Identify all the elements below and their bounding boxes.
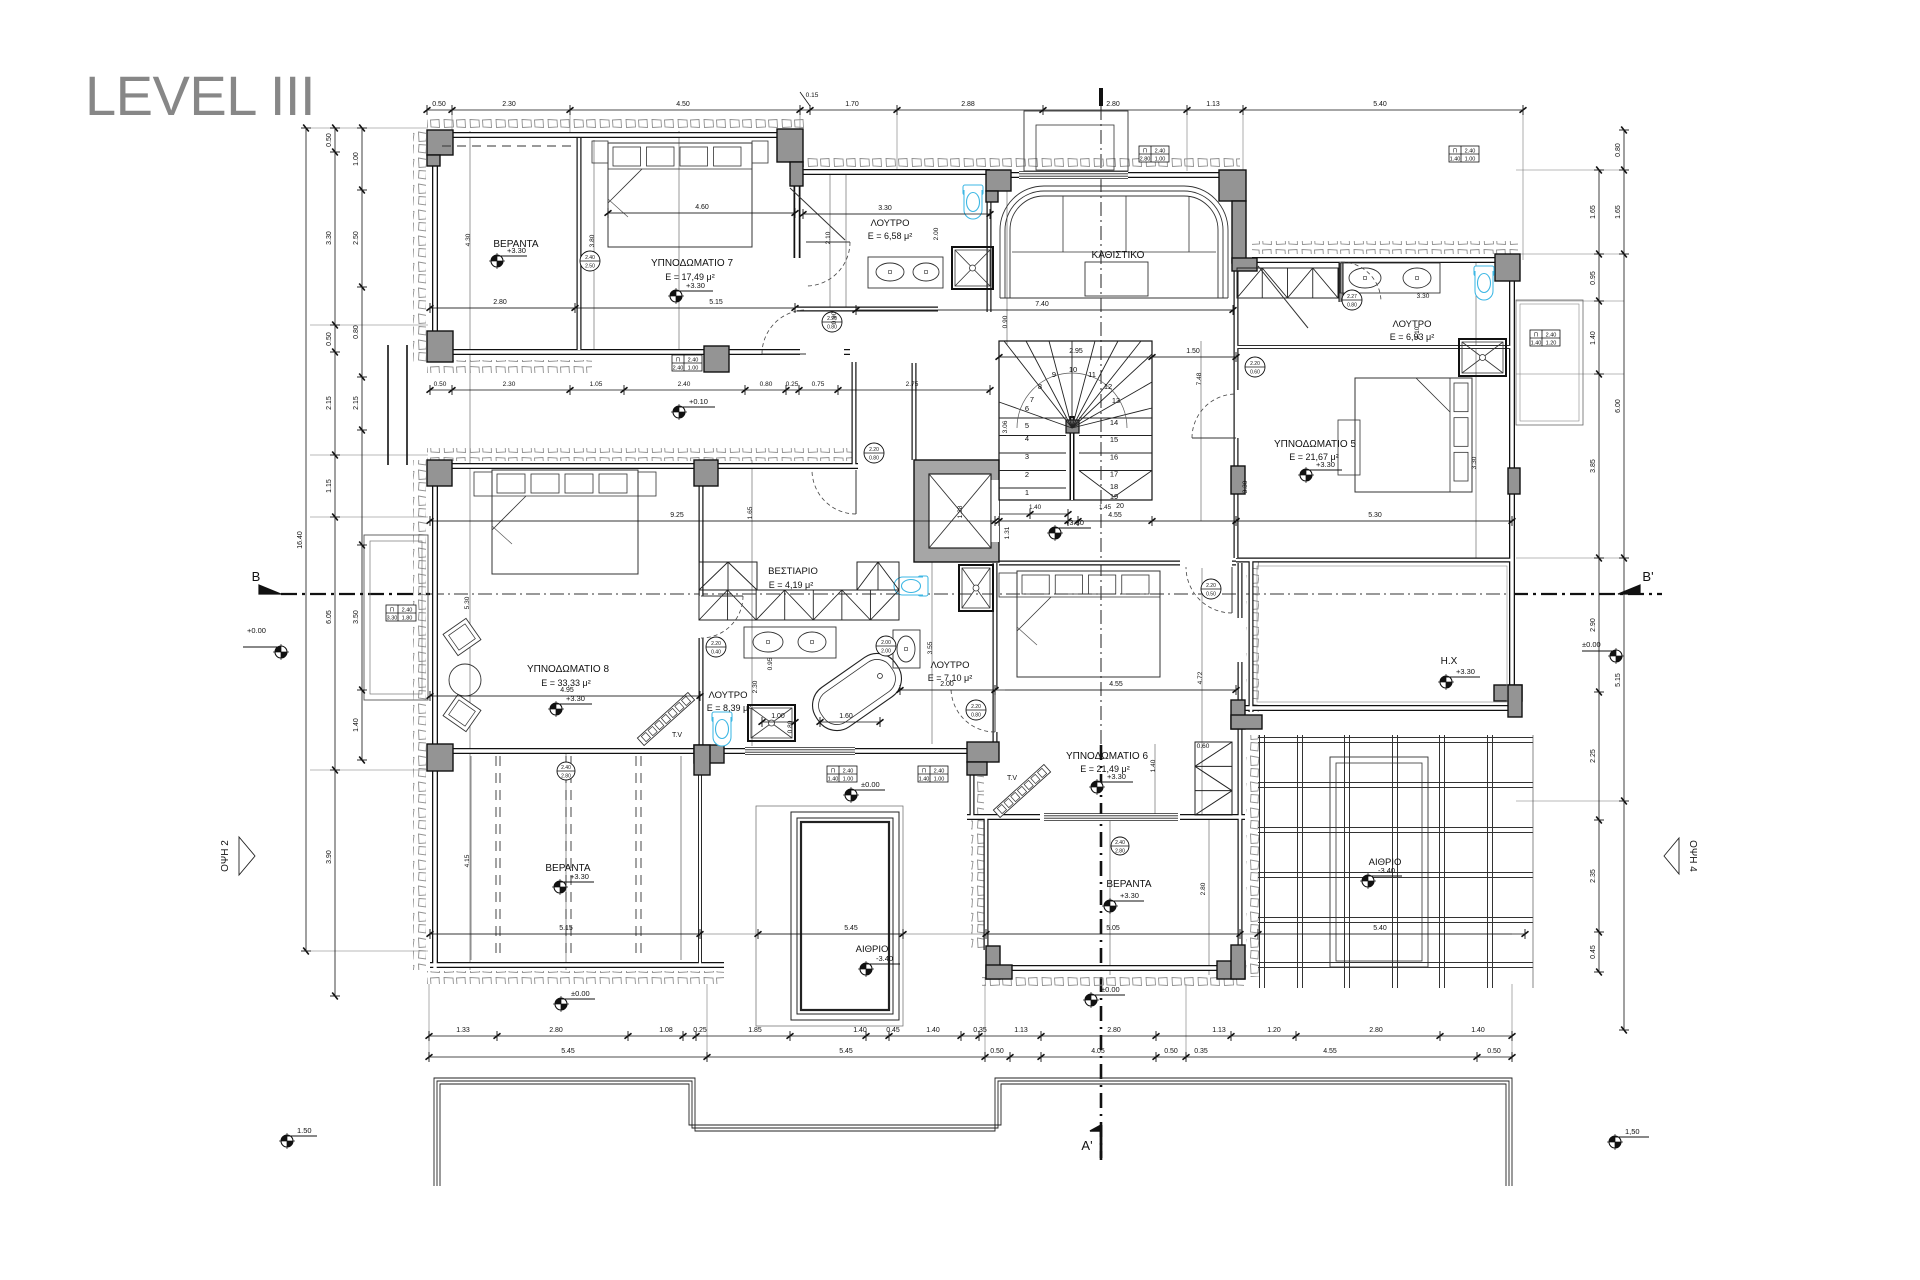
- svg-text:+3.30: +3.30: [1107, 772, 1126, 781]
- svg-text:2.40: 2.40: [1465, 149, 1476, 155]
- svg-text:0.75: 0.75: [812, 381, 825, 388]
- svg-text:2.15: 2.15: [353, 396, 360, 410]
- svg-text:7.48: 7.48: [1196, 372, 1203, 385]
- svg-text:2.40: 2.40: [843, 769, 854, 775]
- svg-text:1.60: 1.60: [839, 713, 853, 720]
- svg-text:E = 6,93 μ²: E = 6,93 μ²: [1390, 332, 1434, 342]
- svg-text:+3.30: +3.30: [570, 872, 589, 881]
- svg-text:4.55: 4.55: [1109, 681, 1123, 688]
- svg-text:3.30: 3.30: [387, 616, 398, 622]
- svg-text:2.50: 2.50: [353, 231, 360, 245]
- svg-text:±0.00: ±0.00: [1582, 640, 1601, 649]
- svg-text:+3.30: +3.30: [1316, 460, 1335, 469]
- svg-text:2.80: 2.80: [493, 299, 507, 306]
- svg-text:9.25: 9.25: [670, 512, 684, 519]
- svg-text:3: 3: [1025, 452, 1029, 461]
- svg-text:1.70: 1.70: [845, 101, 859, 108]
- svg-text:0.50: 0.50: [1164, 1048, 1178, 1055]
- svg-text:1.65: 1.65: [1590, 205, 1597, 219]
- svg-text:1.13: 1.13: [1206, 101, 1220, 108]
- svg-text:1.05: 1.05: [590, 381, 603, 388]
- svg-text:1.40: 1.40: [1450, 157, 1461, 163]
- svg-text:0.40: 0.40: [711, 650, 721, 656]
- svg-text:2.30: 2.30: [502, 101, 516, 108]
- svg-text:0.80: 0.80: [1615, 143, 1622, 157]
- svg-text:2.40: 2.40: [402, 608, 413, 614]
- svg-text:1.20: 1.20: [1267, 1027, 1281, 1034]
- svg-text:0.90: 0.90: [1002, 315, 1009, 328]
- svg-text:2.20: 2.20: [869, 447, 879, 453]
- svg-text:0.35: 0.35: [973, 1027, 987, 1034]
- svg-text:14: 14: [1110, 418, 1118, 427]
- svg-text:6.05: 6.05: [326, 610, 333, 624]
- svg-text:1.00: 1.00: [843, 777, 854, 783]
- svg-text:0.95: 0.95: [767, 657, 774, 670]
- svg-text:3.30: 3.30: [878, 205, 892, 212]
- svg-text:E = 8,39 μ²: E = 8,39 μ²: [707, 703, 751, 713]
- svg-text:19: 19: [1110, 492, 1118, 501]
- svg-text:Π: Π: [676, 358, 680, 364]
- svg-text:5.45: 5.45: [844, 925, 858, 932]
- svg-text:0.80: 0.80: [1347, 303, 1357, 309]
- svg-text:5.30: 5.30: [1368, 512, 1382, 519]
- svg-text:ΛΟΥΤΡΟ: ΛΟΥΤΡΟ: [708, 690, 747, 701]
- svg-text:12: 12: [1104, 382, 1112, 391]
- svg-text:1.65: 1.65: [1615, 205, 1622, 219]
- svg-text:+3.30: +3.30: [507, 246, 526, 255]
- svg-text:1.33: 1.33: [456, 1027, 470, 1034]
- svg-text:2.35: 2.35: [1590, 869, 1597, 883]
- svg-text:2.20: 2.20: [971, 704, 981, 710]
- svg-text:0.80: 0.80: [869, 456, 879, 462]
- svg-text:T.V: T.V: [672, 732, 682, 739]
- svg-text:0.35: 0.35: [1194, 1048, 1208, 1055]
- svg-text:±0.00: ±0.00: [571, 989, 590, 998]
- svg-text:5.45: 5.45: [839, 1048, 853, 1055]
- svg-text:4: 4: [1025, 434, 1029, 443]
- svg-text:8: 8: [1038, 382, 1042, 391]
- svg-text:6: 6: [1025, 404, 1029, 413]
- svg-text:2.00: 2.00: [933, 227, 940, 240]
- svg-text:2.30: 2.30: [752, 680, 759, 693]
- svg-text:ΥΠΝΟΔΩΜΑΤΙΟ 8: ΥΠΝΟΔΩΜΑΤΙΟ 8: [527, 664, 610, 675]
- svg-text:0.60: 0.60: [1250, 370, 1260, 376]
- svg-text:ΟΨΗ 2: ΟΨΗ 2: [220, 840, 231, 872]
- svg-text:0.60: 0.60: [1197, 743, 1210, 750]
- svg-text:3.55: 3.55: [927, 641, 934, 654]
- svg-text:2.30: 2.30: [503, 381, 516, 388]
- svg-text:5.40: 5.40: [1373, 101, 1387, 108]
- svg-text:ΟΨΗ 4: ΟΨΗ 4: [1687, 840, 1698, 872]
- svg-text:1.00: 1.00: [934, 777, 945, 783]
- svg-text:4.60: 4.60: [695, 204, 709, 211]
- svg-text:0.50: 0.50: [326, 332, 333, 346]
- svg-text:-3.40: -3.40: [1378, 866, 1395, 875]
- svg-text:20: 20: [1116, 503, 1124, 510]
- svg-text:1.40: 1.40: [1150, 759, 1157, 772]
- svg-text:4.15: 4.15: [464, 854, 471, 867]
- svg-text:2.88: 2.88: [961, 101, 975, 108]
- svg-text:2.80: 2.80: [1369, 1027, 1383, 1034]
- svg-text:1.80: 1.80: [402, 616, 413, 622]
- svg-text:2.75: 2.75: [906, 381, 919, 388]
- svg-text:2.95: 2.95: [1069, 348, 1083, 355]
- svg-text:Π: Π: [1143, 149, 1147, 155]
- svg-text:4.05: 4.05: [1091, 1048, 1105, 1055]
- svg-text:2.80: 2.80: [1115, 849, 1125, 855]
- svg-text:1.40: 1.40: [1590, 331, 1597, 345]
- svg-text:2.00: 2.00: [881, 640, 891, 646]
- svg-text:2.40: 2.40: [585, 255, 595, 261]
- svg-text:0.90: 0.90: [831, 311, 838, 324]
- svg-text:1.40: 1.40: [353, 718, 360, 732]
- svg-text:1.20: 1.20: [1546, 341, 1557, 347]
- svg-text:2.40: 2.40: [688, 358, 699, 364]
- svg-text:+3.30: +3.30: [1120, 891, 1139, 900]
- svg-text:0.15: 0.15: [806, 92, 819, 99]
- svg-text:0.45: 0.45: [1590, 945, 1597, 959]
- svg-text:ΛΟΥΤΡΟ: ΛΟΥΤΡΟ: [1392, 319, 1431, 330]
- svg-text:0.80: 0.80: [827, 325, 837, 331]
- svg-text:B: B: [252, 569, 261, 584]
- svg-text:2.10: 2.10: [1414, 326, 1421, 339]
- svg-text:Π: Π: [1534, 333, 1538, 339]
- svg-text:1.40: 1.40: [919, 777, 930, 783]
- svg-text:1.65: 1.65: [747, 506, 754, 519]
- svg-text:0.45: 0.45: [886, 1027, 900, 1034]
- svg-text:2.25: 2.25: [1590, 749, 1597, 763]
- svg-text:1.00: 1.00: [771, 713, 785, 720]
- svg-text:ΒΕΡΑΝΤΑ: ΒΕΡΑΝΤΑ: [1106, 879, 1152, 890]
- svg-text:0.80: 0.80: [760, 381, 773, 388]
- svg-text:1.40: 1.40: [926, 1027, 940, 1034]
- svg-text:3.90: 3.90: [326, 850, 333, 864]
- svg-text:1.40: 1.40: [1029, 504, 1042, 511]
- svg-text:0.95: 0.95: [1590, 271, 1597, 285]
- svg-text:2.27: 2.27: [1347, 294, 1357, 300]
- svg-text:0.80: 0.80: [787, 720, 794, 733]
- svg-text:5.15: 5.15: [709, 299, 723, 306]
- svg-text:Π: Π: [831, 769, 835, 775]
- svg-text:0.50: 0.50: [432, 101, 446, 108]
- svg-text:2.40: 2.40: [673, 366, 684, 372]
- svg-text:1,50: 1,50: [1625, 1127, 1640, 1136]
- svg-text:LEVEL III: LEVEL III: [85, 64, 315, 127]
- svg-text:4.72: 4.72: [1197, 671, 1204, 684]
- svg-text:2.15: 2.15: [326, 396, 333, 410]
- svg-text:7: 7: [1030, 395, 1034, 404]
- svg-text:4.95: 4.95: [560, 687, 574, 694]
- svg-text:2: 2: [1025, 470, 1029, 479]
- svg-text:0.80: 0.80: [353, 325, 360, 339]
- svg-text:2.20: 2.20: [1206, 583, 1216, 589]
- svg-text:2.90: 2.90: [1590, 618, 1597, 632]
- svg-text:13: 13: [1112, 396, 1120, 405]
- svg-text:5.05: 5.05: [1106, 925, 1120, 932]
- svg-text:1.40: 1.40: [1471, 1027, 1485, 1034]
- svg-text:0.50: 0.50: [1206, 592, 1216, 598]
- svg-text:0.25: 0.25: [693, 1027, 707, 1034]
- svg-text:1.13: 1.13: [1212, 1027, 1226, 1034]
- svg-text:ΚΑΘΙΣΤΙΚΟ: ΚΑΘΙΣΤΙΚΟ: [1092, 250, 1145, 261]
- svg-text:+3.30: +3.30: [1456, 667, 1475, 676]
- svg-text:ΥΠΝΟΔΩΜΑΤΙΟ 7: ΥΠΝΟΔΩΜΑΤΙΟ 7: [651, 258, 734, 269]
- svg-text:5.40: 5.40: [1373, 925, 1387, 932]
- svg-text:1.50: 1.50: [1186, 348, 1200, 355]
- svg-text:3.30: 3.30: [1242, 480, 1249, 493]
- svg-text:9: 9: [1052, 370, 1056, 379]
- svg-text:5.15: 5.15: [559, 925, 573, 932]
- svg-text:+3.30: +3.30: [566, 694, 585, 703]
- svg-text:1.00: 1.00: [353, 152, 360, 166]
- svg-text:+3.30: +3.30: [686, 281, 705, 290]
- svg-text:1.13: 1.13: [1014, 1027, 1028, 1034]
- svg-text:18: 18: [1110, 482, 1118, 491]
- svg-text:E = 6,58 μ²: E = 6,58 μ²: [868, 231, 912, 241]
- svg-text:3.30: 3.30: [1471, 456, 1478, 469]
- svg-text:2.40: 2.40: [1546, 333, 1557, 339]
- svg-text:1.08: 1.08: [659, 1027, 673, 1034]
- svg-text:5: 5: [1025, 421, 1029, 430]
- svg-text:3.50: 3.50: [353, 610, 360, 624]
- svg-text:2.40: 2.40: [1115, 840, 1125, 846]
- svg-text:Π: Π: [1453, 149, 1457, 155]
- svg-text:ΛΟΥΤΡΟ: ΛΟΥΤΡΟ: [930, 660, 969, 671]
- svg-text:2.00: 2.00: [940, 681, 954, 688]
- svg-text:16.40: 16.40: [297, 531, 304, 549]
- svg-text:11: 11: [1088, 370, 1096, 379]
- svg-text:0.50: 0.50: [990, 1048, 1004, 1055]
- svg-text:2.00: 2.00: [881, 649, 891, 655]
- svg-text:3.30: 3.30: [326, 231, 333, 245]
- svg-text:ΥΠΝΟΔΩΜΑΤΙΟ 6: ΥΠΝΟΔΩΜΑΤΙΟ 6: [1066, 751, 1149, 762]
- svg-text:1.00: 1.00: [1155, 157, 1166, 163]
- svg-text:10: 10: [1069, 365, 1077, 374]
- svg-text:4.50: 4.50: [676, 101, 690, 108]
- svg-text:Π: Π: [922, 769, 926, 775]
- svg-text:2.80: 2.80: [1106, 101, 1120, 108]
- svg-text:6.00: 6.00: [1615, 399, 1622, 413]
- svg-text:2.40: 2.40: [561, 765, 571, 771]
- svg-text:2.40: 2.40: [678, 381, 691, 388]
- svg-text:2.50: 2.50: [585, 264, 595, 270]
- svg-text:1: 1: [1025, 488, 1029, 497]
- svg-text:2.20: 2.20: [1250, 361, 1260, 367]
- svg-text:1.40: 1.40: [1531, 341, 1542, 347]
- svg-text:Π: Π: [390, 608, 394, 614]
- svg-text:1.40: 1.40: [853, 1027, 867, 1034]
- svg-text:0.50: 0.50: [434, 381, 447, 388]
- svg-text:2.40: 2.40: [1155, 149, 1166, 155]
- svg-text:7.40: 7.40: [1035, 301, 1049, 308]
- svg-text:2.80: 2.80: [561, 774, 571, 780]
- svg-text:1.40: 1.40: [828, 777, 839, 783]
- svg-text:2.80: 2.80: [1107, 1027, 1121, 1034]
- svg-text:5.15: 5.15: [1615, 673, 1622, 687]
- svg-text:0.50: 0.50: [1487, 1048, 1501, 1055]
- svg-text:±0.00: ±0.00: [1101, 985, 1120, 994]
- svg-text:4.30: 4.30: [465, 233, 472, 246]
- svg-text:2.80: 2.80: [1200, 882, 1207, 895]
- svg-text:1.31: 1.31: [1004, 526, 1011, 539]
- svg-text:5.30: 5.30: [464, 596, 471, 609]
- svg-text:0.25: 0.25: [786, 381, 799, 388]
- svg-text:3.30: 3.30: [1417, 293, 1430, 300]
- svg-text:ΛΟΥΤΡΟ: ΛΟΥΤΡΟ: [870, 218, 909, 229]
- svg-text:ΒΕΣΤΙΑΡΙΟ: ΒΕΣΤΙΑΡΙΟ: [768, 566, 818, 577]
- svg-text:3.06: 3.06: [1002, 420, 1009, 433]
- svg-text:H.X: H.X: [1441, 656, 1458, 667]
- svg-text:1.00: 1.00: [1465, 157, 1476, 163]
- svg-text:1.38: 1.38: [957, 505, 964, 518]
- svg-text:1.50: 1.50: [297, 1126, 312, 1135]
- svg-text:2.80: 2.80: [549, 1027, 563, 1034]
- svg-text:+0.10: +0.10: [689, 397, 708, 406]
- svg-text:17: 17: [1110, 470, 1118, 479]
- svg-text:-3.40: -3.40: [876, 954, 893, 963]
- svg-text:5.45: 5.45: [561, 1048, 575, 1055]
- svg-text:0.50: 0.50: [326, 133, 333, 147]
- svg-text:2.80: 2.80: [1140, 157, 1151, 163]
- svg-text:2.40: 2.40: [934, 769, 945, 775]
- svg-text:0.80: 0.80: [971, 713, 981, 719]
- svg-text:1.15: 1.15: [326, 479, 333, 493]
- svg-text:2.20: 2.20: [711, 641, 721, 647]
- svg-text:±0.00: ±0.00: [861, 780, 880, 789]
- svg-text:16: 16: [1110, 453, 1118, 462]
- svg-text:15: 15: [1110, 435, 1118, 444]
- svg-text:1.85: 1.85: [748, 1027, 762, 1034]
- svg-text:1.45: 1.45: [1099, 504, 1112, 511]
- svg-text:A': A': [1081, 1138, 1092, 1153]
- svg-text:B': B': [1642, 569, 1653, 584]
- svg-text:E = 4,19 μ²: E = 4,19 μ²: [769, 580, 813, 590]
- svg-text:ΥΠΝΟΔΩΜΑΤΙΟ 5: ΥΠΝΟΔΩΜΑΤΙΟ 5: [1274, 439, 1357, 450]
- svg-text:2.10: 2.10: [825, 231, 832, 244]
- svg-text:4.55: 4.55: [1108, 512, 1122, 519]
- svg-text:3.85: 3.85: [1590, 459, 1597, 473]
- svg-text:3.80: 3.80: [589, 234, 596, 247]
- svg-text:+0.00: +0.00: [247, 626, 266, 635]
- svg-text:4.55: 4.55: [1323, 1048, 1337, 1055]
- svg-text:1.00: 1.00: [688, 366, 699, 372]
- svg-text:T.V: T.V: [1007, 775, 1017, 782]
